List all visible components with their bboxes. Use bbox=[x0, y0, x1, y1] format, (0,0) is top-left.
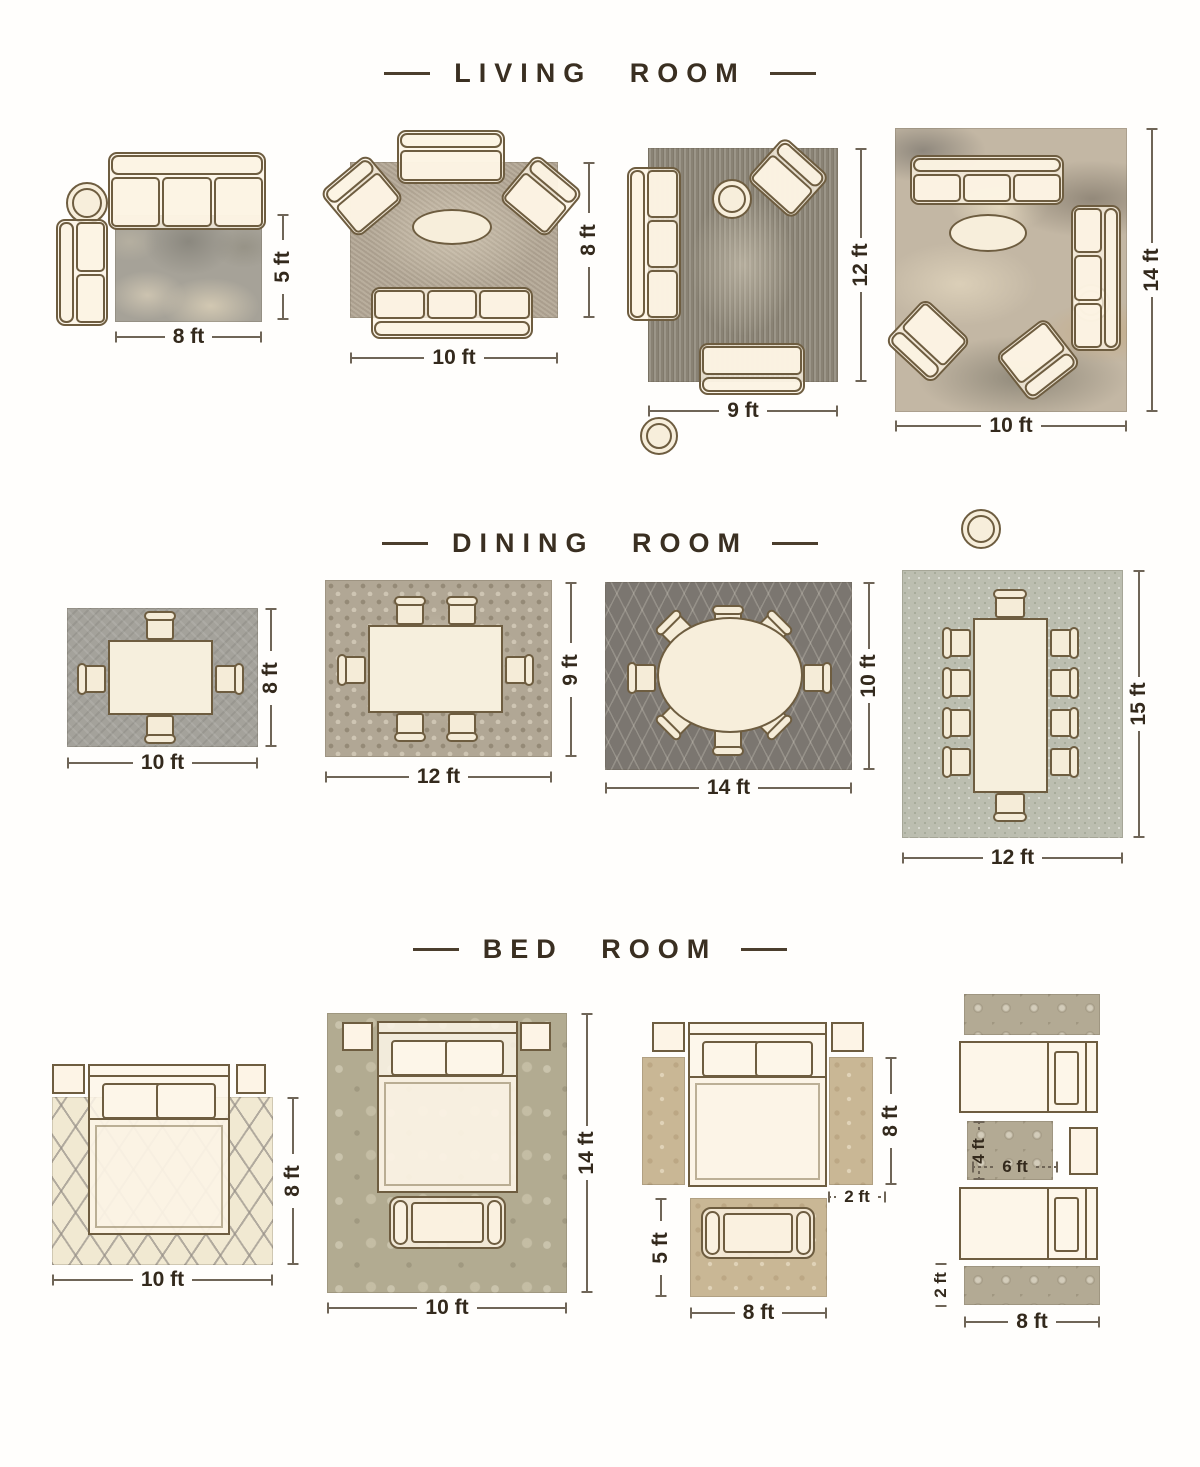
sofa-cushion bbox=[913, 174, 961, 202]
dimension-line bbox=[978, 1121, 980, 1131]
dimension-line bbox=[586, 1180, 588, 1293]
dimension-text: 10 ft bbox=[417, 1296, 476, 1320]
sofa-back bbox=[1104, 208, 1118, 348]
sofa-2seat bbox=[397, 130, 505, 184]
oval-dining-table bbox=[657, 617, 803, 733]
nightstand bbox=[342, 1022, 373, 1051]
dimension-line bbox=[648, 410, 719, 412]
dining-chair bbox=[803, 664, 827, 692]
sofa-back bbox=[630, 170, 645, 318]
round-side-table bbox=[712, 179, 752, 219]
mattress bbox=[961, 1189, 1049, 1258]
dimension-line bbox=[212, 336, 262, 338]
dimension-line bbox=[270, 608, 272, 651]
dimension-line bbox=[67, 762, 133, 764]
dimension-text: 14 ft bbox=[1140, 248, 1164, 291]
sofa-cushion bbox=[76, 274, 105, 324]
pillow bbox=[1054, 1051, 1079, 1105]
dimension-line bbox=[690, 1312, 735, 1314]
dimension-line bbox=[828, 1196, 836, 1198]
dimension-text: 5 ft bbox=[271, 251, 295, 283]
dimension-line bbox=[1151, 128, 1153, 243]
dimension-text: 14 ft bbox=[575, 1131, 599, 1174]
sofa-cushion bbox=[374, 290, 425, 319]
dim-width: 10 ft bbox=[327, 1295, 567, 1321]
dim-front-rug-width: 8 ft bbox=[690, 1300, 827, 1326]
dining-chair bbox=[396, 601, 424, 625]
sofa-cushion bbox=[162, 177, 211, 227]
dimension-line bbox=[468, 776, 552, 778]
dimension-text: 6 ft bbox=[994, 1157, 1036, 1177]
dim-width: 12 ft bbox=[902, 845, 1123, 871]
dimension-line bbox=[282, 294, 284, 320]
dining-chair bbox=[1050, 748, 1074, 776]
dimension-text: 10 ft bbox=[133, 751, 192, 775]
dimension-line bbox=[588, 267, 590, 318]
pillow bbox=[755, 1041, 813, 1077]
headboard bbox=[690, 1024, 825, 1035]
nightstand bbox=[1069, 1127, 1098, 1175]
dimension-label: 9 ft bbox=[558, 643, 584, 697]
dining-chair bbox=[947, 748, 971, 776]
dimension-label: 14 ft bbox=[574, 1126, 600, 1180]
sofa-cushion bbox=[214, 177, 263, 227]
dimension-label: 8 ft bbox=[878, 1094, 904, 1148]
dimension-text: 10 ft bbox=[133, 1268, 192, 1292]
dim-width: 10 ft bbox=[52, 1267, 273, 1293]
pillow bbox=[156, 1083, 215, 1119]
sofa-2seat bbox=[699, 343, 805, 395]
dimension-label: 15 ft bbox=[1126, 677, 1152, 731]
pillow bbox=[1054, 1197, 1079, 1252]
dim-height: 10 ft bbox=[856, 582, 882, 770]
sofa-seats bbox=[913, 174, 1061, 202]
blanket bbox=[688, 1076, 827, 1187]
bed bbox=[688, 1022, 827, 1187]
dimension-text: 14 ft bbox=[699, 776, 758, 800]
dimension-line bbox=[52, 1279, 133, 1281]
sofa-seats bbox=[1074, 208, 1102, 348]
dimension-line bbox=[878, 1196, 886, 1198]
dining-chair bbox=[146, 715, 174, 739]
dimension-line bbox=[327, 1307, 417, 1309]
dim-height: 14 ft bbox=[1139, 128, 1165, 412]
bed bbox=[88, 1064, 230, 1235]
dim-runner-height: 2 ft bbox=[928, 1263, 954, 1307]
dim-front-rug-height: 5 ft bbox=[648, 1198, 674, 1297]
section-title-bed-room: BED ROOM bbox=[0, 934, 1200, 965]
nightstand bbox=[236, 1064, 266, 1094]
dim-height: 15 ft bbox=[1126, 570, 1152, 838]
nightstand bbox=[520, 1022, 551, 1051]
bed bbox=[377, 1021, 518, 1193]
dimension-line bbox=[282, 214, 284, 240]
sofa-seats bbox=[647, 170, 678, 318]
dimension-line bbox=[292, 1097, 294, 1154]
title-dash-left bbox=[384, 72, 430, 75]
dimension-line bbox=[782, 1312, 827, 1314]
dimension-text: 5 ft bbox=[649, 1232, 673, 1264]
bench bbox=[389, 1196, 506, 1249]
twin-bed bbox=[959, 1041, 1098, 1113]
headboard bbox=[90, 1066, 228, 1077]
sofa-cushion bbox=[1074, 303, 1102, 348]
sofa-cushion bbox=[1074, 255, 1102, 300]
title-dash-left bbox=[382, 542, 428, 545]
sofa-cushion bbox=[963, 174, 1011, 202]
dimension-label: 5 ft bbox=[648, 1221, 674, 1275]
dining-chair bbox=[396, 713, 424, 737]
sofa-cushion bbox=[479, 290, 530, 319]
dim-center-rug-width: 6 ft bbox=[972, 1156, 1058, 1178]
living-rug-5x8 bbox=[115, 215, 262, 322]
dimension-label: 5 ft bbox=[270, 240, 296, 294]
mattress bbox=[961, 1043, 1049, 1111]
dimension-line bbox=[940, 1305, 942, 1307]
dim-runner-height: 8 ft bbox=[878, 1057, 904, 1185]
round-side-table bbox=[961, 509, 1001, 549]
dimension-line bbox=[350, 357, 424, 359]
rug-size-guide-poster: LIVING ROOM 5 ft 8 ft 8 bbox=[0, 0, 1200, 1467]
dimension-text: 15 ft bbox=[1127, 682, 1151, 725]
oval-coffee-table bbox=[412, 209, 492, 245]
dimension-line bbox=[860, 148, 862, 238]
section-title-text: DINING ROOM bbox=[452, 528, 748, 559]
dimension-line bbox=[1138, 570, 1140, 677]
sofa-seats bbox=[76, 222, 105, 323]
sofa-back bbox=[702, 377, 802, 392]
dining-chair bbox=[947, 629, 971, 657]
sofa-seats bbox=[400, 150, 502, 181]
sofa-cushion bbox=[647, 270, 678, 318]
dimension-line bbox=[1042, 857, 1123, 859]
dimension-text: 9 ft bbox=[559, 654, 583, 686]
nightstand bbox=[652, 1022, 685, 1052]
blanket bbox=[88, 1118, 230, 1235]
bench-arm bbox=[796, 1211, 811, 1255]
dim-width: 9 ft bbox=[648, 398, 838, 424]
dining-chair bbox=[1050, 629, 1074, 657]
dining-chair bbox=[947, 709, 971, 737]
dimension-line bbox=[477, 1307, 567, 1309]
dimension-line bbox=[605, 787, 699, 789]
runner-rug bbox=[964, 1266, 1100, 1305]
dim-width: 8 ft bbox=[115, 324, 262, 350]
dimension-text: 8 ft bbox=[281, 1165, 305, 1197]
dimension-line bbox=[895, 425, 981, 427]
twin-bed bbox=[959, 1187, 1098, 1260]
dimension-line bbox=[292, 1208, 294, 1265]
pillow bbox=[102, 1083, 161, 1119]
dining-table bbox=[368, 625, 503, 713]
dimension-text: 8 ft bbox=[735, 1301, 783, 1325]
sofa-back bbox=[400, 133, 502, 148]
dimension-line bbox=[270, 705, 272, 748]
dim-width: 10 ft bbox=[895, 413, 1127, 439]
dimension-line bbox=[570, 697, 572, 758]
dimension-line bbox=[1041, 425, 1127, 427]
dim-height: 5 ft bbox=[270, 214, 296, 320]
dimension-text: 9 ft bbox=[719, 399, 767, 423]
dimension-text: 8 ft bbox=[165, 325, 213, 349]
dimension-line bbox=[484, 357, 558, 359]
dimension-line bbox=[570, 582, 572, 643]
dimension-line bbox=[1138, 731, 1140, 838]
sofa-back bbox=[111, 155, 263, 175]
section-title-living-room: LIVING ROOM bbox=[0, 58, 1200, 89]
dimension-line bbox=[192, 762, 258, 764]
pillow bbox=[445, 1040, 504, 1076]
dimension-label: 8 ft bbox=[280, 1154, 306, 1208]
dimension-line bbox=[1056, 1321, 1100, 1323]
dimension-text: 2 ft bbox=[931, 1272, 951, 1298]
sofa-3seat bbox=[910, 155, 1064, 205]
dim-height: 14 ft bbox=[574, 1013, 600, 1293]
dining-table bbox=[973, 618, 1048, 793]
dining-chair bbox=[82, 665, 106, 693]
dining-chair bbox=[505, 656, 529, 684]
sofa-cushion bbox=[1074, 208, 1102, 253]
section-title-dining-room: DINING ROOM bbox=[0, 528, 1200, 559]
sofa-3seat bbox=[371, 287, 533, 339]
pillow-zone bbox=[1047, 1189, 1087, 1258]
dimension-line bbox=[115, 336, 165, 338]
dimension-label: 8 ft bbox=[576, 213, 602, 267]
dining-chair bbox=[448, 713, 476, 737]
sofa-seats bbox=[374, 290, 530, 319]
dimension-label: 14 ft bbox=[1139, 243, 1165, 297]
dining-chair bbox=[995, 594, 1025, 618]
bedside-runner-rug bbox=[829, 1057, 873, 1185]
dining-chair bbox=[448, 601, 476, 625]
sofa-cushion bbox=[647, 170, 678, 218]
dimension-label: 12 ft bbox=[848, 238, 874, 292]
dim-runner-width: 8 ft bbox=[964, 1309, 1100, 1335]
dimension-line bbox=[868, 582, 870, 649]
dimension-line bbox=[758, 787, 852, 789]
pillow-zone bbox=[1047, 1043, 1087, 1111]
dimension-line bbox=[890, 1148, 892, 1185]
dimension-line bbox=[972, 1166, 994, 1168]
dimension-line bbox=[192, 1279, 273, 1281]
dimension-line bbox=[767, 410, 838, 412]
title-dash-left bbox=[413, 948, 459, 951]
sofa-cushion bbox=[647, 220, 678, 268]
dim-width: 12 ft bbox=[325, 764, 552, 790]
dining-chair bbox=[995, 793, 1025, 817]
dimension-line bbox=[868, 703, 870, 770]
dimension-label: 2 ft bbox=[928, 1265, 954, 1305]
bench-cushion bbox=[411, 1202, 484, 1243]
bench-arm bbox=[393, 1200, 408, 1245]
title-dash-right bbox=[770, 72, 816, 75]
dimension-line bbox=[660, 1198, 662, 1221]
dining-chair bbox=[1050, 709, 1074, 737]
sofa-3seat bbox=[627, 167, 681, 321]
sofa-3seat bbox=[108, 152, 266, 230]
dining-chair bbox=[947, 669, 971, 697]
sofa-seats bbox=[111, 177, 263, 227]
dimension-line bbox=[588, 162, 590, 213]
sofa-cushion bbox=[1013, 174, 1061, 202]
dining-chair bbox=[632, 664, 656, 692]
dimension-text: 10 ft bbox=[981, 414, 1040, 438]
sofa-2seat bbox=[56, 219, 108, 326]
blanket bbox=[377, 1075, 518, 1193]
section-title-text: BED ROOM bbox=[483, 934, 718, 965]
dimension-text: 8 ft bbox=[1008, 1310, 1056, 1334]
bench-cushion bbox=[723, 1213, 793, 1253]
sofa-cushion bbox=[76, 222, 105, 272]
dim-height: 8 ft bbox=[576, 162, 602, 318]
bedside-runner-rug bbox=[642, 1057, 685, 1185]
dining-chair bbox=[342, 656, 366, 684]
oval-coffee-table bbox=[949, 214, 1027, 252]
dimension-text: 8 ft bbox=[879, 1105, 903, 1137]
dining-chair bbox=[1050, 669, 1074, 697]
runner-rug bbox=[964, 994, 1100, 1035]
sofa-back bbox=[374, 321, 530, 336]
sofa-cushion bbox=[400, 150, 502, 181]
dim-width: 14 ft bbox=[605, 775, 852, 801]
dining-chair bbox=[146, 616, 174, 640]
dimension-line bbox=[1151, 297, 1153, 412]
dining-chair bbox=[215, 665, 239, 693]
dimension-label: 8 ft bbox=[258, 651, 284, 705]
dim-height: 9 ft bbox=[558, 582, 584, 757]
dimension-text: 8 ft bbox=[259, 662, 283, 694]
dimension-line bbox=[860, 292, 862, 382]
dim-runner-width: 2 ft bbox=[828, 1186, 886, 1208]
dimension-text: 12 ft bbox=[849, 243, 873, 286]
dim-width: 10 ft bbox=[350, 345, 558, 371]
title-dash-right bbox=[772, 542, 818, 545]
dimension-line bbox=[902, 857, 983, 859]
bench-arm bbox=[487, 1200, 502, 1245]
dimension-text: 10 ft bbox=[857, 654, 881, 697]
pillow bbox=[391, 1040, 450, 1076]
section-title-text: LIVING ROOM bbox=[454, 58, 746, 89]
title-dash-right bbox=[741, 948, 787, 951]
sofa-3seat bbox=[1071, 205, 1121, 351]
dimension-text: 8 ft bbox=[577, 224, 601, 256]
dimension-text: 12 ft bbox=[409, 765, 468, 789]
sofa-seats bbox=[702, 346, 802, 375]
bench-arm bbox=[705, 1211, 720, 1255]
dimension-line bbox=[890, 1057, 892, 1094]
sofa-back bbox=[59, 222, 74, 323]
round-side-table bbox=[66, 182, 108, 224]
dimension-line bbox=[325, 776, 409, 778]
dimension-line bbox=[964, 1321, 1008, 1323]
bench bbox=[701, 1207, 815, 1259]
pillow bbox=[702, 1041, 760, 1077]
dimension-text: 12 ft bbox=[983, 846, 1042, 870]
nightstand bbox=[831, 1022, 864, 1052]
nightstand bbox=[52, 1064, 85, 1094]
dim-height: 12 ft bbox=[848, 148, 874, 382]
dim-height: 8 ft bbox=[258, 608, 284, 747]
sofa-cushion bbox=[111, 177, 160, 227]
dimension-line bbox=[660, 1275, 662, 1298]
sofa-cushion bbox=[702, 346, 802, 375]
dim-height: 8 ft bbox=[280, 1097, 306, 1265]
dimension-label: 10 ft bbox=[856, 649, 882, 703]
sofa-back bbox=[913, 158, 1061, 172]
headboard bbox=[379, 1023, 516, 1034]
dimension-text: 2 ft bbox=[836, 1187, 878, 1207]
dim-width: 10 ft bbox=[67, 750, 258, 776]
dining-table bbox=[108, 640, 213, 715]
sofa-cushion bbox=[427, 290, 478, 319]
dimension-text: 10 ft bbox=[424, 346, 483, 370]
dimension-line bbox=[1036, 1166, 1058, 1168]
dimension-line bbox=[586, 1013, 588, 1126]
